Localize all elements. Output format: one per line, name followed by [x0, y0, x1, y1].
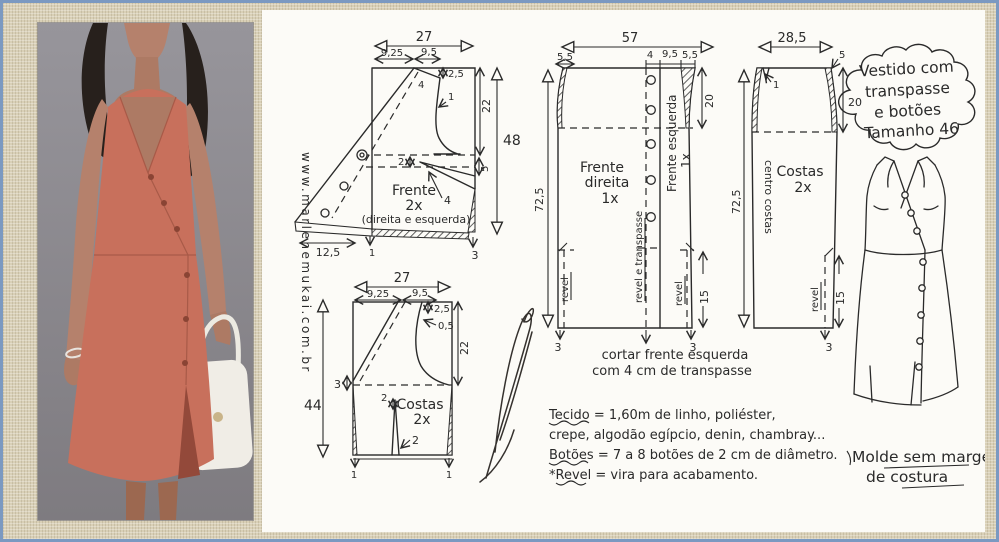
- note-revel-line: *Revel = vira para acabamento.: [549, 468, 758, 483]
- dim-skirtfront-top-width: 57: [622, 31, 639, 46]
- dim-bodicefront-dart-point: 4: [444, 194, 451, 207]
- dim-bodicefront-armhole: 1: [448, 92, 454, 103]
- dim-bodicefront-wrap-width: 12,5: [316, 246, 341, 259]
- pattern-paper: www.marlenemukai.com.br 27 9,25 9,5: [262, 10, 985, 532]
- dim-bodicefront-side-dip: 5: [480, 166, 491, 172]
- dim-skirtback-dart: 1: [773, 80, 779, 91]
- bubble-line3: e botões: [874, 100, 942, 121]
- dim-skirtfront-hem-left: 3: [555, 341, 562, 354]
- dim-bodiceback-neck-drop: 2,5: [434, 304, 450, 315]
- dim-skirtfront-hem-facing: 15: [698, 290, 711, 304]
- skirt-back-center-fold-label: centro costas: [762, 160, 775, 234]
- dim-skirtfront-side-right: 5,5: [682, 50, 698, 61]
- skirt-front-piece: 57 5,5 4 9,5 5,5 20: [533, 31, 716, 354]
- dim-bodiceback-total-length: 44: [304, 398, 322, 414]
- dim-bodiceback-side-length: 22: [458, 341, 471, 355]
- notes: Tecido = 1,60m de linho, poliéster, crep…: [548, 408, 838, 485]
- dim-bodicefront-shoulder-left: 9,25: [381, 48, 403, 59]
- skirt-front-right-qty: 1x: [601, 191, 618, 207]
- dim-skirtfront-hip-depth: 20: [703, 94, 716, 108]
- dim-bodicefront-side-length: 22: [480, 99, 493, 113]
- note-buttons-line: Botões = 7 a 8 botões de 2 cm de diâmetr…: [549, 448, 838, 463]
- skirt-front-facing-left-label: revel: [560, 277, 571, 302]
- bodice-back-piece: 27 9,25 9,5 2,5 0,5 22: [304, 271, 471, 481]
- bodice-front-piece: 27 9,25 9,5 2,5 1: [295, 30, 521, 262]
- handbag-clasp: [213, 412, 223, 422]
- dim-bodiceback-waist-dip: 3: [334, 378, 341, 391]
- skirt-front-left-name: Frente esquerda: [665, 94, 679, 192]
- dim-skirtfront-center-gap: 9,5: [662, 49, 678, 60]
- cut-note-line2: com 4 cm de transpasse: [592, 364, 752, 379]
- dim-bodicefront-neck-drop: 2,5: [448, 69, 464, 80]
- skirt-back-facing-label: revel: [810, 287, 821, 312]
- dress-sketch: [854, 157, 958, 405]
- scanned-pattern-page: www.marlenemukai.com.br 27 9,25 9,5: [0, 0, 999, 542]
- dim-bodiceback-hem-right: 1: [446, 470, 452, 481]
- model-photo: [38, 23, 253, 520]
- bodice-front-name: Frente: [392, 183, 436, 199]
- dim-bodiceback-shoulder-right: 9,5: [412, 288, 428, 299]
- note-fabric-line2: crepe, algodão egípcio, denin, chambray.…: [549, 428, 825, 443]
- model-leg-right: [158, 481, 178, 520]
- skirt-back-qty: 2x: [794, 180, 811, 196]
- bodice-back-name: Costas: [397, 397, 444, 413]
- skirt-back-name: Costas: [777, 164, 824, 180]
- dim-bodiceback-dart-bottom: 2: [412, 434, 419, 447]
- sketch-caption-line2: de costura: [866, 468, 948, 486]
- bodice-back-qty: 2x: [413, 412, 430, 428]
- dim-skirtfront-overlap: 4: [647, 50, 653, 61]
- dim-bodiceback-hem-left: 1: [351, 470, 357, 481]
- dim-skirtback-side-right: 5: [839, 50, 845, 61]
- dim-bodiceback-dart-width: 2: [381, 393, 387, 404]
- model-leg-left: [126, 481, 146, 520]
- skirt-front-right-name2: direita: [585, 175, 630, 191]
- dim-skirtback-length: 72,5: [730, 190, 743, 215]
- website-watermark: www.marlenemukai.com.br: [299, 152, 313, 374]
- skirt-front-left-qty: 1x: [679, 153, 693, 168]
- sketch-caption-line1: Molde sem margem: [852, 448, 985, 466]
- dim-bodiceback-shoulder-left: 9,25: [367, 289, 389, 300]
- dim-bodicefront-dart-width: 2: [398, 157, 404, 168]
- skirt-front-facing-right-label: revel: [674, 281, 685, 306]
- dim-bodiceback-top-width: 27: [394, 271, 411, 286]
- bubble-line1: Vestido com: [859, 58, 955, 81]
- dim-skirtback-hip-depth: 20: [848, 96, 862, 109]
- bodice-front-qty: 2x: [405, 198, 422, 214]
- dim-bodicefront-total-length: 48: [503, 133, 521, 149]
- bubble-line2: transpasse: [865, 79, 951, 101]
- cut-note-line1: cortar frente esquerda: [602, 348, 749, 363]
- cut-note: cortar frente esquerda com 4 cm de trans…: [592, 348, 752, 379]
- dim-skirtfront-length: 72,5: [533, 188, 546, 213]
- dim-bodicefront-top-width: 27: [416, 30, 433, 45]
- skirt-front-facing-center-label: revel e transpasse: [634, 211, 645, 303]
- dim-skirtback-hem-facing: 15: [834, 291, 847, 305]
- skirt-front-right-name: Frente: [580, 160, 624, 176]
- bodice-front-note: (direita e esquerda): [362, 213, 471, 226]
- dim-bodicefront-hem-mid: 1: [369, 248, 375, 259]
- dim-bodicefront-shoulder-right: 9,5: [421, 47, 437, 58]
- dim-skirtback-hem-corner: 3: [826, 341, 833, 354]
- dim-bodiceback-armhole: 0,5: [438, 321, 454, 332]
- dim-bodicefront-shoulder-seam: 4: [418, 80, 424, 91]
- dim-skirtback-top-width: 28,5: [778, 31, 807, 46]
- skirt-back-piece: 28,5 5 1 20 72,5 15 3: [730, 31, 862, 354]
- dim-bodicefront-hem-corner: 3: [472, 249, 479, 262]
- dim-skirtfront-side-left: 5,5: [557, 52, 573, 63]
- sketch-caption: Molde sem margem de costura: [847, 448, 985, 488]
- signature: [480, 309, 533, 482]
